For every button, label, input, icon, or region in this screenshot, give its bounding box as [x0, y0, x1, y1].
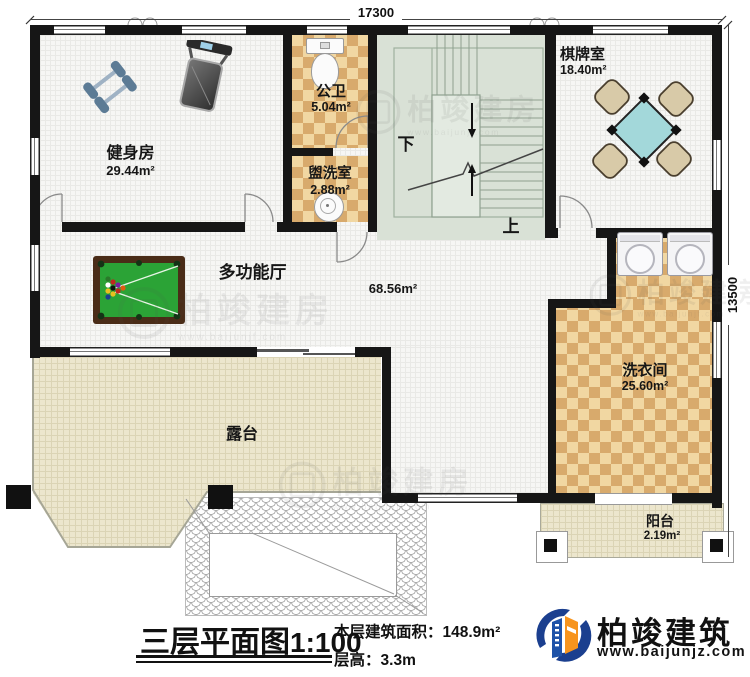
- floor-height-text: 层高：3.3m: [334, 648, 416, 670]
- wall-gym-bath: [283, 35, 292, 232]
- sliding-door: [257, 347, 355, 357]
- window: [182, 25, 246, 35]
- washing-machine-icon: [667, 232, 713, 276]
- treadmill-icon: [172, 40, 244, 114]
- room-label-chess: 棋牌室: [560, 47, 640, 63]
- laundry-floor-main: [556, 299, 712, 493]
- column: [6, 485, 31, 509]
- balcony-opening: [595, 493, 672, 505]
- dimension-width: 17300: [350, 6, 402, 20]
- room-area-gym: 29.44m²: [88, 164, 173, 178]
- room-area-public-bath: 5.04m²: [296, 101, 366, 114]
- watermark: 柏竣建房www.baijunjf.com: [356, 87, 540, 138]
- room-label-balcony: 阳台: [628, 514, 692, 529]
- window: [70, 347, 170, 357]
- dimension-height: 13500: [726, 265, 740, 325]
- room-area-hall: 68.56m²: [363, 282, 423, 296]
- wall-washroom-bottom: [292, 222, 337, 232]
- room-label-hall: 多功能厅: [205, 264, 300, 282]
- game-table-set-icon: [585, 70, 709, 184]
- wall-hall-south-3: [355, 347, 391, 357]
- window: [30, 138, 40, 175]
- wall-left: [30, 25, 40, 358]
- room-area-chess: 18.40m²: [560, 64, 640, 77]
- wall-south-3: [672, 493, 722, 503]
- wall-gym-bottom-stub: [277, 222, 283, 232]
- balcony-column: [536, 531, 568, 563]
- window: [307, 25, 347, 35]
- watermark: 柏竣建房www.baijunjf.com: [279, 458, 473, 512]
- room-label-laundry: 洗衣间: [605, 363, 685, 379]
- wall-hall-south-1: [30, 347, 70, 357]
- column: [208, 485, 233, 509]
- wall-gym-bottom: [62, 222, 245, 232]
- wall-chess-bottom-left: [545, 228, 558, 238]
- window: [408, 25, 510, 35]
- roof-ridge-band: [209, 533, 397, 597]
- wall-right: [712, 25, 722, 508]
- room-label-washroom: 盥洗室: [295, 167, 365, 182]
- wall-south-2: [517, 493, 595, 503]
- window: [712, 140, 722, 190]
- watermark-logo-icon: [590, 274, 632, 316]
- wall-hall-south-2: [170, 347, 257, 357]
- watermark-logo-icon: [118, 287, 170, 339]
- room-area-washroom: 2.88m²: [295, 184, 365, 197]
- wall-stair-chess: [545, 35, 556, 238]
- floor-plan: 柏竣建房www.baijunjf.com 柏竣建房www.baijunjf.co…: [0, 0, 750, 677]
- stairs-down-label: 下: [393, 136, 419, 154]
- room-area-laundry: 25.60m²: [605, 380, 685, 393]
- washing-machine-icon: [617, 232, 663, 276]
- wall-laundry-left: [548, 299, 556, 503]
- window: [54, 25, 105, 35]
- toilet-icon: [306, 38, 344, 54]
- wall-bath-washroom: [292, 148, 333, 156]
- dumbbells-icon: [82, 60, 138, 114]
- title-underline: [136, 655, 332, 658]
- title-underline-2: [136, 661, 332, 663]
- brand-logo-icon: [534, 604, 592, 664]
- watermark: 柏竣建房www.baijunjf.com: [118, 283, 334, 343]
- window: [712, 322, 722, 378]
- floor-area-text: 本层建筑面积：148.9m²: [334, 620, 500, 642]
- window: [593, 25, 668, 35]
- brand-website: www.baijunjz.com: [597, 644, 746, 660]
- stairs-up-label: 上: [498, 218, 524, 236]
- balcony-column: [702, 531, 734, 563]
- room-label-gym: 健身房: [88, 146, 173, 163]
- room-label-public-bath: 公卫: [296, 84, 366, 100]
- watermark-logo-icon: [279, 462, 326, 509]
- room-label-terrace: 露台: [210, 427, 274, 444]
- window: [30, 245, 40, 291]
- room-area-balcony: 2.19m²: [630, 530, 694, 542]
